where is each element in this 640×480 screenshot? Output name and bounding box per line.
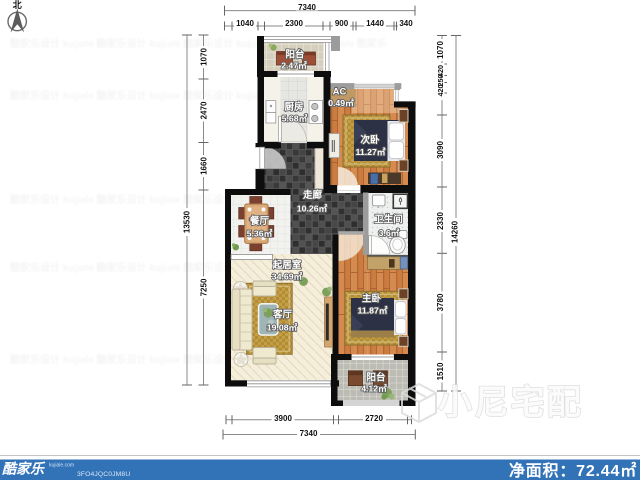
svg-text:19.08㎡: 19.08㎡ [267, 322, 298, 333]
svg-text:次卧: 次卧 [360, 134, 380, 146]
svg-text:0.49㎡: 0.49㎡ [328, 97, 354, 108]
svg-text:900: 900 [335, 19, 349, 28]
svg-text:34.69㎡: 34.69㎡ [272, 271, 303, 282]
svg-text:酷家乐: 酷家乐 [2, 461, 46, 477]
svg-text:2330: 2330 [436, 212, 445, 230]
svg-text:3FO4JQC0JM8U: 3FO4JQC0JM8U [77, 471, 130, 478]
svg-text:7340: 7340 [300, 429, 318, 438]
svg-text:走廊: 走廊 [302, 189, 323, 201]
svg-text:2300: 2300 [285, 19, 303, 28]
svg-text:3900: 3900 [274, 414, 292, 423]
svg-text:1040: 1040 [236, 19, 254, 28]
svg-text:餐厅: 餐厅 [249, 215, 270, 227]
svg-text:2470: 2470 [200, 101, 209, 119]
svg-text:3090: 3090 [436, 141, 445, 159]
svg-text:AC: AC [333, 87, 347, 98]
svg-text:13530: 13530 [183, 210, 192, 233]
svg-text:1510: 1510 [436, 362, 445, 380]
svg-text:420: 420 [436, 85, 445, 97]
svg-text:客厅: 客厅 [272, 309, 293, 321]
svg-text:阳台: 阳台 [285, 49, 305, 61]
svg-text:5.68㎡: 5.68㎡ [282, 113, 308, 124]
svg-text:阳台: 阳台 [366, 372, 386, 384]
svg-text:卫生间: 卫生间 [374, 214, 403, 226]
svg-text:3.6㎡: 3.6㎡ [379, 227, 400, 238]
svg-text:5.36㎡: 5.36㎡ [247, 228, 273, 239]
svg-text:起居室: 起居室 [272, 259, 302, 271]
svg-text:340: 340 [399, 19, 413, 28]
svg-text:kujiale.com: kujiale.com [49, 463, 74, 469]
svg-text:1440: 1440 [366, 19, 384, 28]
svg-text:1070: 1070 [200, 48, 209, 66]
svg-text:厨房: 厨房 [284, 101, 303, 113]
svg-text:1660: 1660 [200, 157, 209, 175]
svg-text:北: 北 [13, 0, 22, 10]
svg-text:4.12㎡: 4.12㎡ [361, 383, 387, 394]
svg-text:14260: 14260 [451, 220, 460, 243]
svg-text:主卧: 主卧 [362, 293, 382, 305]
svg-text:11.27㎡: 11.27㎡ [356, 146, 386, 157]
svg-text:11.87㎡: 11.87㎡ [358, 305, 388, 316]
svg-text:7250: 7250 [200, 278, 209, 296]
svg-text:净面积：72.44㎡: 净面积：72.44㎡ [509, 461, 637, 480]
svg-text:1070: 1070 [436, 41, 445, 59]
svg-text:7340: 7340 [298, 3, 316, 12]
svg-text:2720: 2720 [365, 414, 383, 423]
svg-text:2.47㎡: 2.47㎡ [281, 60, 307, 71]
svg-text:3780: 3780 [436, 293, 445, 311]
svg-text:10.26㎡: 10.26㎡ [297, 203, 328, 214]
